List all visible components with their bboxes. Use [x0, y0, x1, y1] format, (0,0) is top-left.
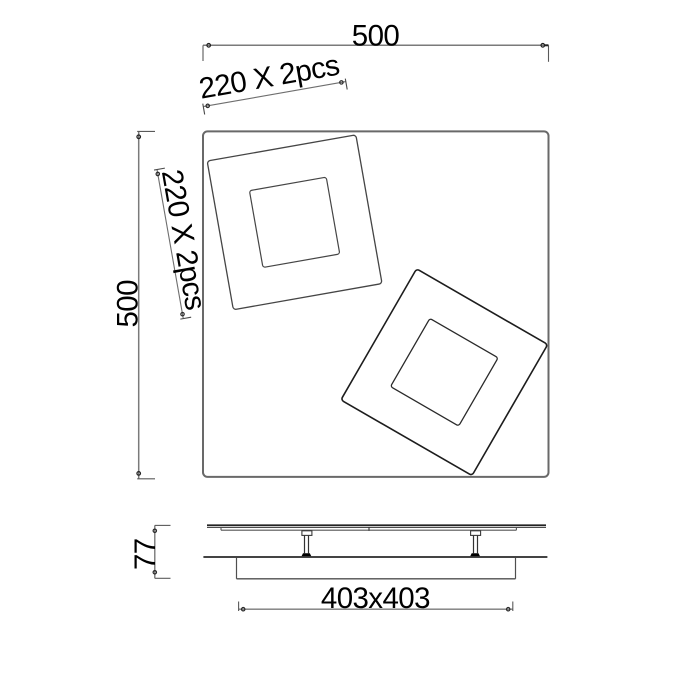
svg-text:500: 500 — [112, 280, 145, 328]
svg-text:403x403: 403x403 — [321, 582, 430, 615]
svg-text:77: 77 — [129, 538, 162, 570]
svg-text:500: 500 — [352, 20, 400, 53]
